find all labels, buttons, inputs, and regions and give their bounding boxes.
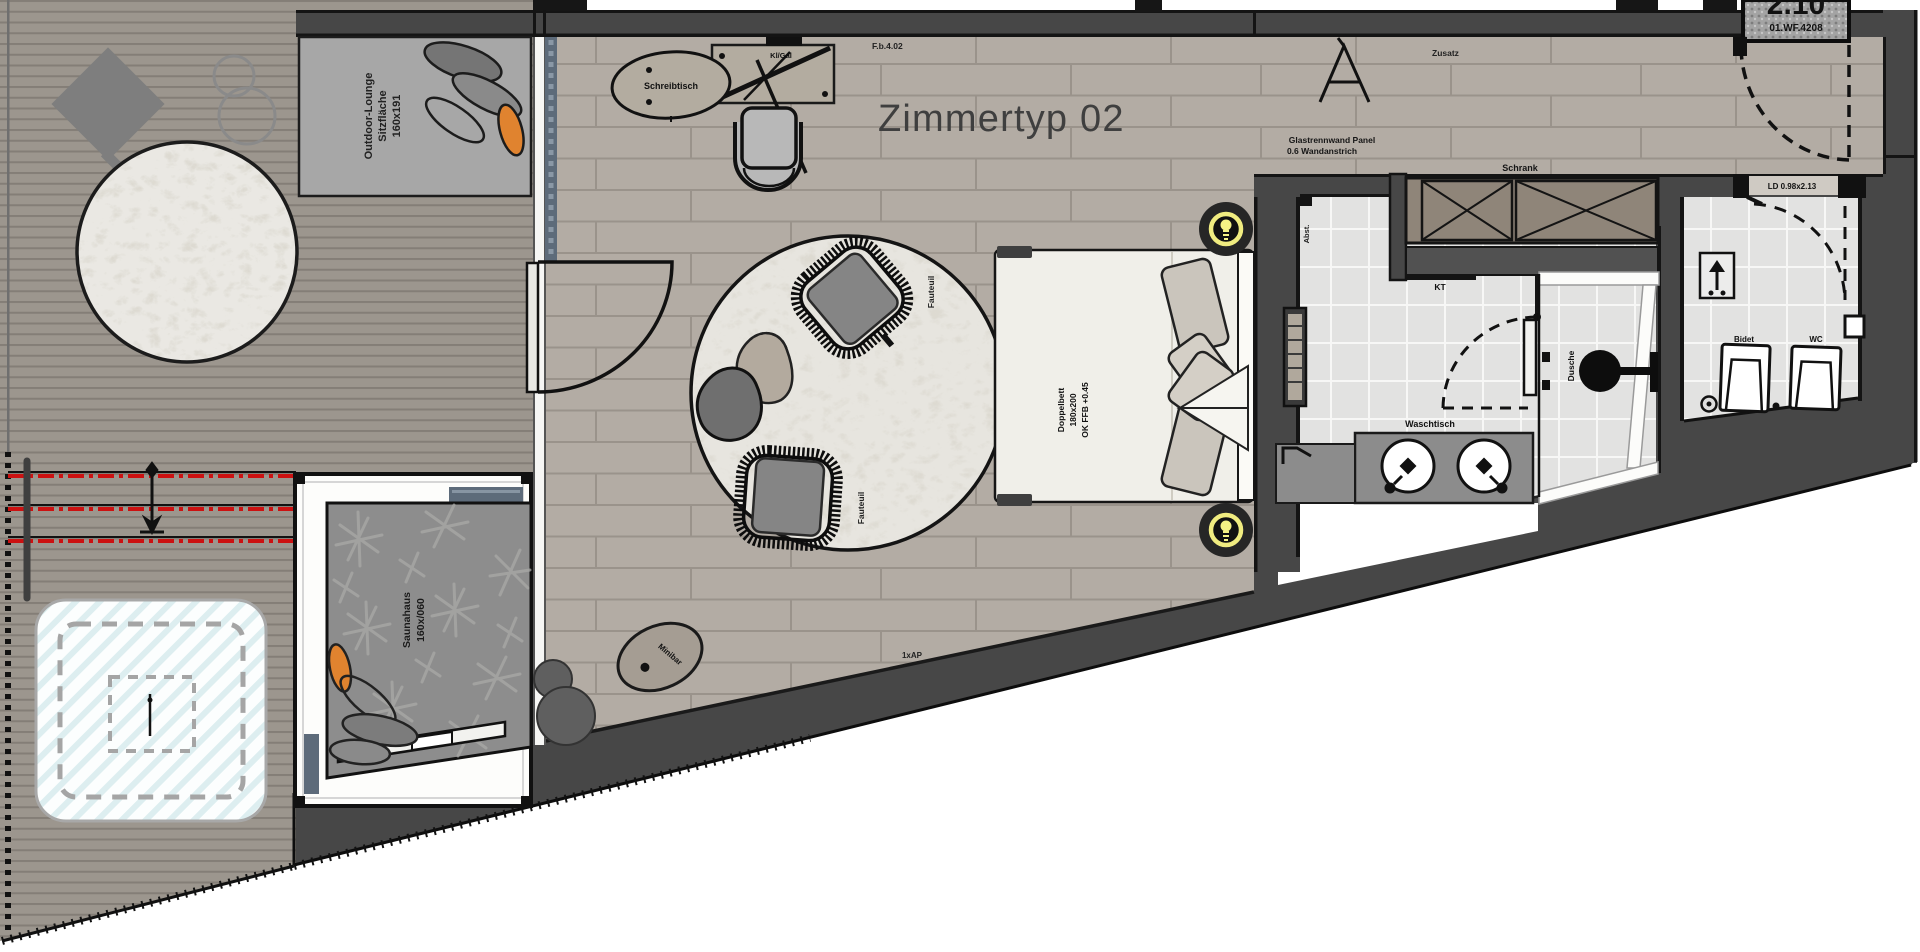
svg-text:F.b.4.02: F.b.4.02 [872,41,903,51]
svg-text:160x191: 160x191 [391,95,403,138]
svg-text:Fauteuil: Fauteuil [856,492,866,525]
svg-text:0.6 Wandanstrich: 0.6 Wandanstrich [1287,146,1357,156]
svg-text:01.WF.4208: 01.WF.4208 [1769,23,1823,34]
svg-text:OK FFB +0.45: OK FFB +0.45 [1080,382,1090,438]
svg-text:160x/060: 160x/060 [415,598,427,642]
svg-text:Waschtisch: Waschtisch [1405,419,1455,429]
svg-text:180x200: 180x200 [1068,393,1078,426]
svg-text:Doppelbett: Doppelbett [1056,388,1066,433]
svg-text:WC: WC [1809,335,1823,344]
svg-text:Zusatz: Zusatz [1432,48,1459,58]
svg-text:Kl/Gal: Kl/Gal [770,51,792,60]
svg-text:Zimmertyp 02: Zimmertyp 02 [878,98,1125,140]
svg-text:2.10: 2.10 [1767,0,1825,21]
svg-text:Dusche: Dusche [1566,350,1576,381]
svg-text:KT: KT [1434,282,1446,292]
svg-text:Sitzfläche: Sitzfläche [377,90,389,141]
svg-text:Glastrennwand Panel: Glastrennwand Panel [1289,135,1375,145]
svg-text:Abst.: Abst. [1302,225,1311,244]
svg-text:Bidet: Bidet [1734,335,1754,344]
svg-text:LD 0.98x2.13: LD 0.98x2.13 [1768,182,1817,191]
svg-text:1xAP: 1xAP [902,651,923,660]
svg-text:Schrank: Schrank [1502,163,1539,173]
svg-text:Saunahaus: Saunahaus [401,592,413,648]
svg-text:Schreibtisch: Schreibtisch [644,81,698,91]
svg-text:Outdoor-Lounge: Outdoor-Lounge [363,73,375,160]
svg-text:Fauteuil: Fauteuil [926,276,936,309]
